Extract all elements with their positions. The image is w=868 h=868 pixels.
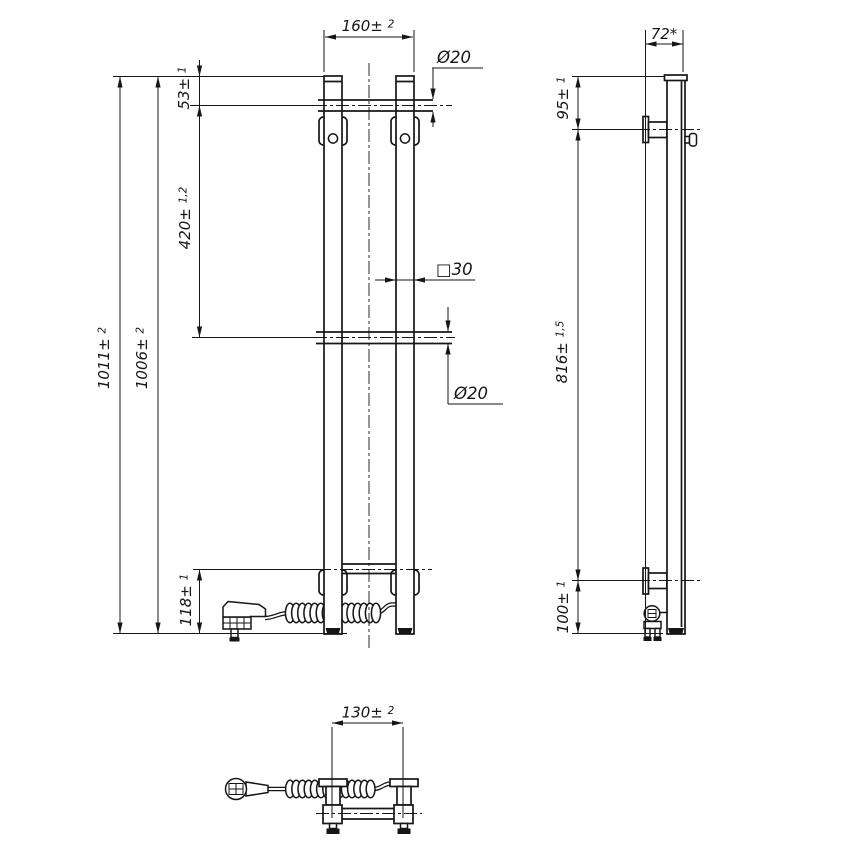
dim-top-tube-offset: 53± 1 <box>175 66 193 109</box>
plan-right-foot <box>398 824 411 835</box>
dim-total-height: 1011± 2 <box>95 327 113 390</box>
plan-left-foot <box>327 824 340 835</box>
plan-view: 130± 2 <box>226 704 423 835</box>
top-left-screw-hole <box>328 134 337 143</box>
dim-bottom-tube-offset: 118± 1 <box>177 574 195 627</box>
dim-depth: 72* <box>651 25 678 43</box>
right-post <box>396 76 414 635</box>
dim-post-profile: □30 <box>436 260 473 279</box>
side-bottom-bracket <box>643 568 667 594</box>
power-plug-side <box>644 606 669 641</box>
dim-middle-tube-diameter: Ø20 <box>453 384 488 403</box>
plan-right-bracket-stem <box>397 787 411 806</box>
side-post <box>665 75 688 635</box>
dim-top-bracket-offset: 95± 1 <box>554 76 572 119</box>
dim-bottom-bracket-offset: 100± 1 <box>554 581 572 634</box>
dim-bracket-spacing-side: 816± 1,5 <box>553 320 571 383</box>
dim-tube-spacing: 420± 1,2 <box>176 186 194 249</box>
side-view: 72* 95± 1 816± 1,5 100± 1 <box>553 25 701 641</box>
power-plug-plan <box>226 779 269 800</box>
dim-top-tube-diameter: Ø20 <box>436 48 471 67</box>
dim-overall-width: 160± 2 <box>342 17 395 35</box>
plan-right-wall-plate <box>390 779 418 787</box>
plan-left-bracket-stem <box>326 787 340 806</box>
dim-secondary-height: 1006± 2 <box>133 327 151 390</box>
top-right-screw-hole <box>400 134 409 143</box>
plan-dimension-lines <box>332 723 403 818</box>
dim-bracket-spacing-plan: 130± 2 <box>342 704 395 722</box>
plan-left-wall-plate <box>319 779 347 787</box>
power-plug-front <box>223 602 266 642</box>
left-post <box>324 76 342 635</box>
technical-drawing-canvas: 160± 2 1011± 2 1006± 2 53± 1 420± 1,2 11… <box>0 0 868 868</box>
front-view: 160± 2 1011± 2 1006± 2 53± 1 420± 1,2 11… <box>95 17 503 649</box>
side-hook-knob <box>685 134 697 147</box>
